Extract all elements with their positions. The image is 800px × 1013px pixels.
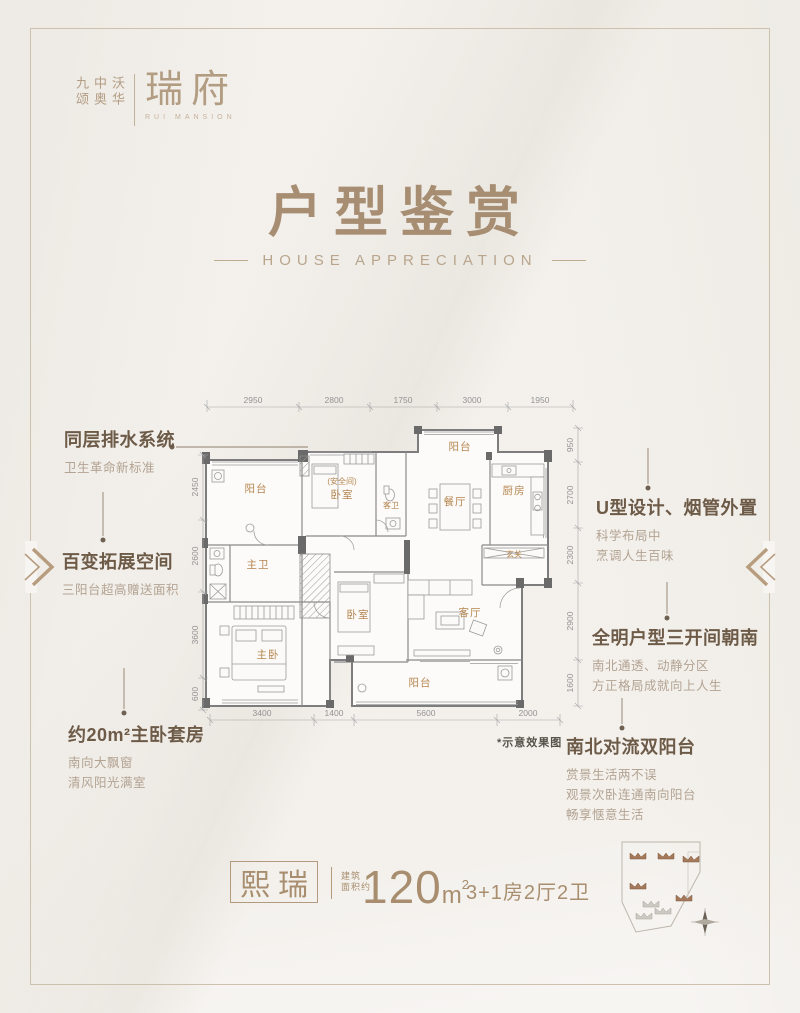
unit-name-box: 熙瑞: [230, 861, 318, 903]
callout-double-balcony: 南北对流双阳台 赏景生活两不误 观景次卧连通南向阳台 畅享惬意生活: [566, 733, 696, 825]
disclaimer-note: *示意效果图: [497, 734, 562, 750]
room-label-bedroom2: 卧室: [347, 608, 370, 621]
brand-company-columns: 九颂 中奥 沃华: [74, 76, 124, 108]
dim-left-3: 600: [190, 687, 200, 701]
unit-name: 熙瑞: [240, 860, 316, 904]
room-label-safe-room: (安全间): [327, 476, 357, 486]
callout-double-balcony-heading: 南北对流双阳台: [566, 733, 696, 759]
dim-right-0: 950: [565, 438, 575, 452]
poster-page: { "brand": { "company": ["九颂", "中奥", "沃华…: [0, 0, 800, 1013]
logo-divider: [134, 74, 135, 126]
subtitle-dash-left: [214, 260, 248, 261]
room-label-balcony-nw: 阳台: [245, 482, 268, 495]
callout-south-facing: 全明户型三开间朝南 南北通透、动静分区 方正格局成就向上人生: [592, 624, 759, 696]
callout-south-facing-heading: 全明户型三开间朝南: [592, 624, 759, 650]
brand-company-1: 九颂: [74, 76, 88, 108]
callout-drainage-heading: 同层排水系统: [64, 426, 175, 452]
brand-logo: 九颂 中奥 沃华 瑞府 RUI MANSION: [74, 68, 237, 126]
page-title: 户型鉴赏: [0, 168, 800, 247]
area-unit: m: [442, 882, 462, 909]
room-label-balcony-s: 阳台: [409, 676, 432, 689]
area-value: 120m2: [362, 860, 469, 914]
callout-south-facing-line1: 南北通透、动静分区: [592, 657, 759, 676]
callout-double-balcony-line1: 赏景生活两不误: [566, 766, 696, 785]
site-buildings-other: [636, 901, 671, 919]
callout-double-balcony-line3: 畅享惬意生活: [566, 806, 696, 825]
floorplan: 阳台 主卫 主卧 (安全间) 卧室 客卫 阳台 餐厅 厨房 玄关 卧室 客厅 阳…: [101, 395, 670, 731]
brand-name-en: RUI MANSION: [145, 114, 237, 121]
dim-left-0: 2450: [190, 477, 200, 496]
dim-bottom-3: 2000: [519, 708, 538, 718]
brand-company-3: 沃华: [110, 76, 124, 108]
dim-top-0: 2950: [244, 395, 263, 405]
dim-bottom-0: 3400: [253, 708, 272, 718]
callout-u-kitchen-line1: 科学布局中: [596, 527, 758, 546]
dim-top-2: 1750: [394, 395, 413, 405]
brand-company-2: 中奥: [92, 76, 106, 108]
callout-drainage: 同层排水系统 卫生革命新标准: [64, 426, 175, 478]
room-label-guest-bath: 客卫: [383, 500, 399, 510]
callout-expand-space-line1: 三阳台超高赠送面积: [62, 581, 179, 600]
callout-master-suite-line1: 南向大飘窗: [68, 754, 205, 773]
room-label-foyer: 玄关: [506, 549, 522, 559]
room-label-balcony-n: 阳台: [449, 440, 472, 453]
page-subtitle-row: HOUSE APPRECIATION: [0, 252, 800, 269]
compass-icon: [691, 908, 719, 936]
dim-top-1: 2800: [325, 395, 344, 405]
dim-bottom-1: 1400: [325, 708, 344, 718]
unit-spec: 3+1房2厅2卫: [466, 876, 590, 905]
callout-expand-space-heading: 百变拓展空间: [62, 548, 179, 574]
callout-u-kitchen-line2: 烹调人生百味: [596, 547, 758, 566]
dim-left-1: 2600: [190, 546, 200, 565]
dim-top-3: 3000: [463, 395, 482, 405]
footer-separator: [331, 867, 332, 899]
room-label-master-bedroom: 主卧: [257, 648, 280, 661]
subtitle-dash-right: [552, 260, 586, 261]
callout-u-kitchen-heading: U型设计、烟管外置: [596, 494, 758, 520]
callout-master-suite-heading: 约20m²主卧套房: [68, 721, 205, 747]
dim-left-2: 3600: [190, 625, 200, 644]
callout-double-balcony-line2: 观景次卧连通南向阳台: [566, 786, 696, 805]
page-subtitle: HOUSE APPRECIATION: [262, 252, 537, 269]
dim-top-4: 1950: [531, 395, 550, 405]
room-label-living: 客厅: [459, 606, 482, 619]
dim-right-2: 2300: [565, 545, 575, 564]
callout-south-facing-line2: 方正格局成就向上人生: [592, 677, 759, 696]
brand-name: 瑞府: [145, 68, 237, 112]
dim-bottom-2: 5600: [417, 708, 436, 718]
callout-u-kitchen: U型设计、烟管外置 科学布局中 烹调人生百味: [596, 494, 758, 566]
callout-master-suite: 约20m²主卧套房 南向大飘窗 清风阳光满室: [68, 721, 205, 793]
callout-master-suite-line2: 清风阳光满室: [68, 774, 205, 793]
dim-right-3: 2900: [565, 611, 575, 630]
room-label-dining: 餐厅: [444, 495, 467, 508]
area-number: 120: [362, 861, 442, 913]
room-label-kitchen: 厨房: [503, 484, 526, 497]
room-label-master-bath: 主卫: [247, 559, 270, 571]
room-label-bedroom-safe: 卧室: [331, 488, 354, 501]
callout-drainage-line1: 卫生革命新标准: [64, 459, 175, 478]
dim-right-4: 1600: [565, 673, 575, 692]
callout-expand-space: 百变拓展空间 三阳台超高赠送面积: [62, 548, 179, 600]
dim-right-1: 2700: [565, 485, 575, 504]
site-plan: [622, 842, 719, 936]
